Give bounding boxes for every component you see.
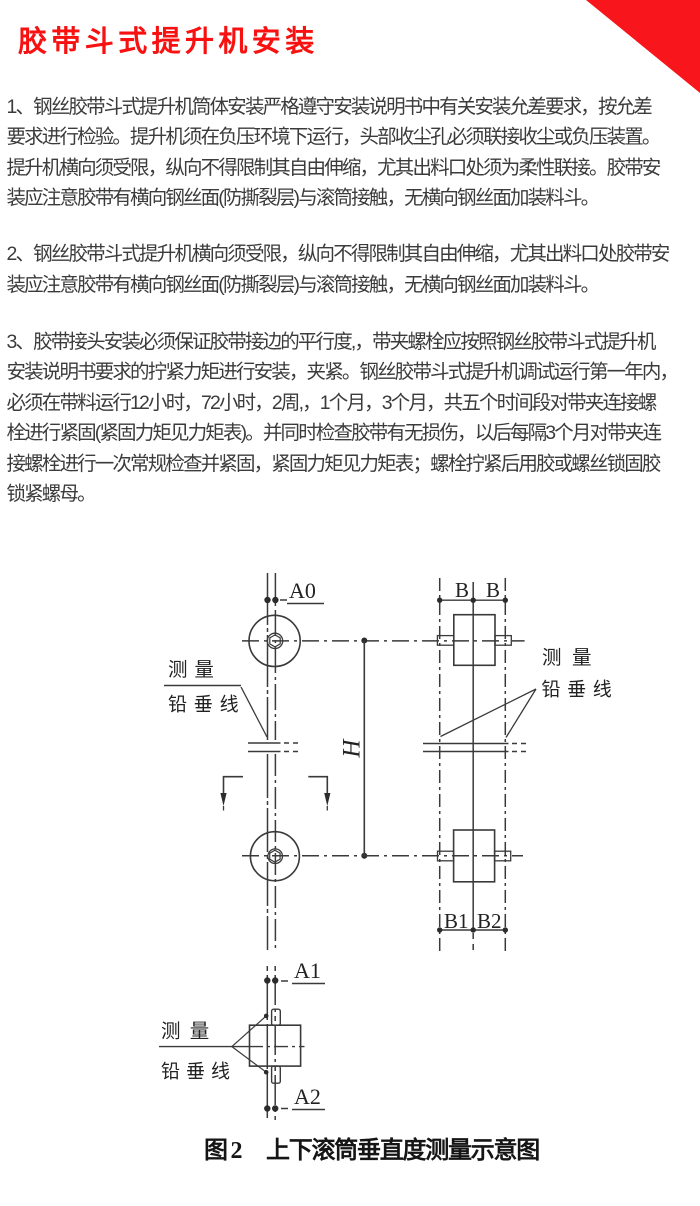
svg-text:测量: 测量 [168, 659, 221, 681]
svg-text:A2: A2 [294, 1084, 321, 1109]
svg-text:铅垂线: 铅垂线 [161, 1061, 236, 1083]
svg-text:A1: A1 [294, 958, 321, 983]
svg-text:铅垂线: 铅垂线 [168, 694, 245, 716]
svg-text:B1: B1 [444, 909, 469, 933]
svg-text:铅垂线: 铅垂线 [542, 679, 619, 701]
svg-text:B2: B2 [477, 909, 502, 933]
svg-text:测量: 测量 [542, 647, 602, 669]
svg-text:H: H [339, 738, 366, 759]
svg-text:A0: A0 [289, 578, 316, 603]
svg-text:B: B [455, 578, 469, 602]
svg-text:B: B [486, 578, 500, 602]
svg-text:测量: 测量 [161, 1021, 219, 1043]
